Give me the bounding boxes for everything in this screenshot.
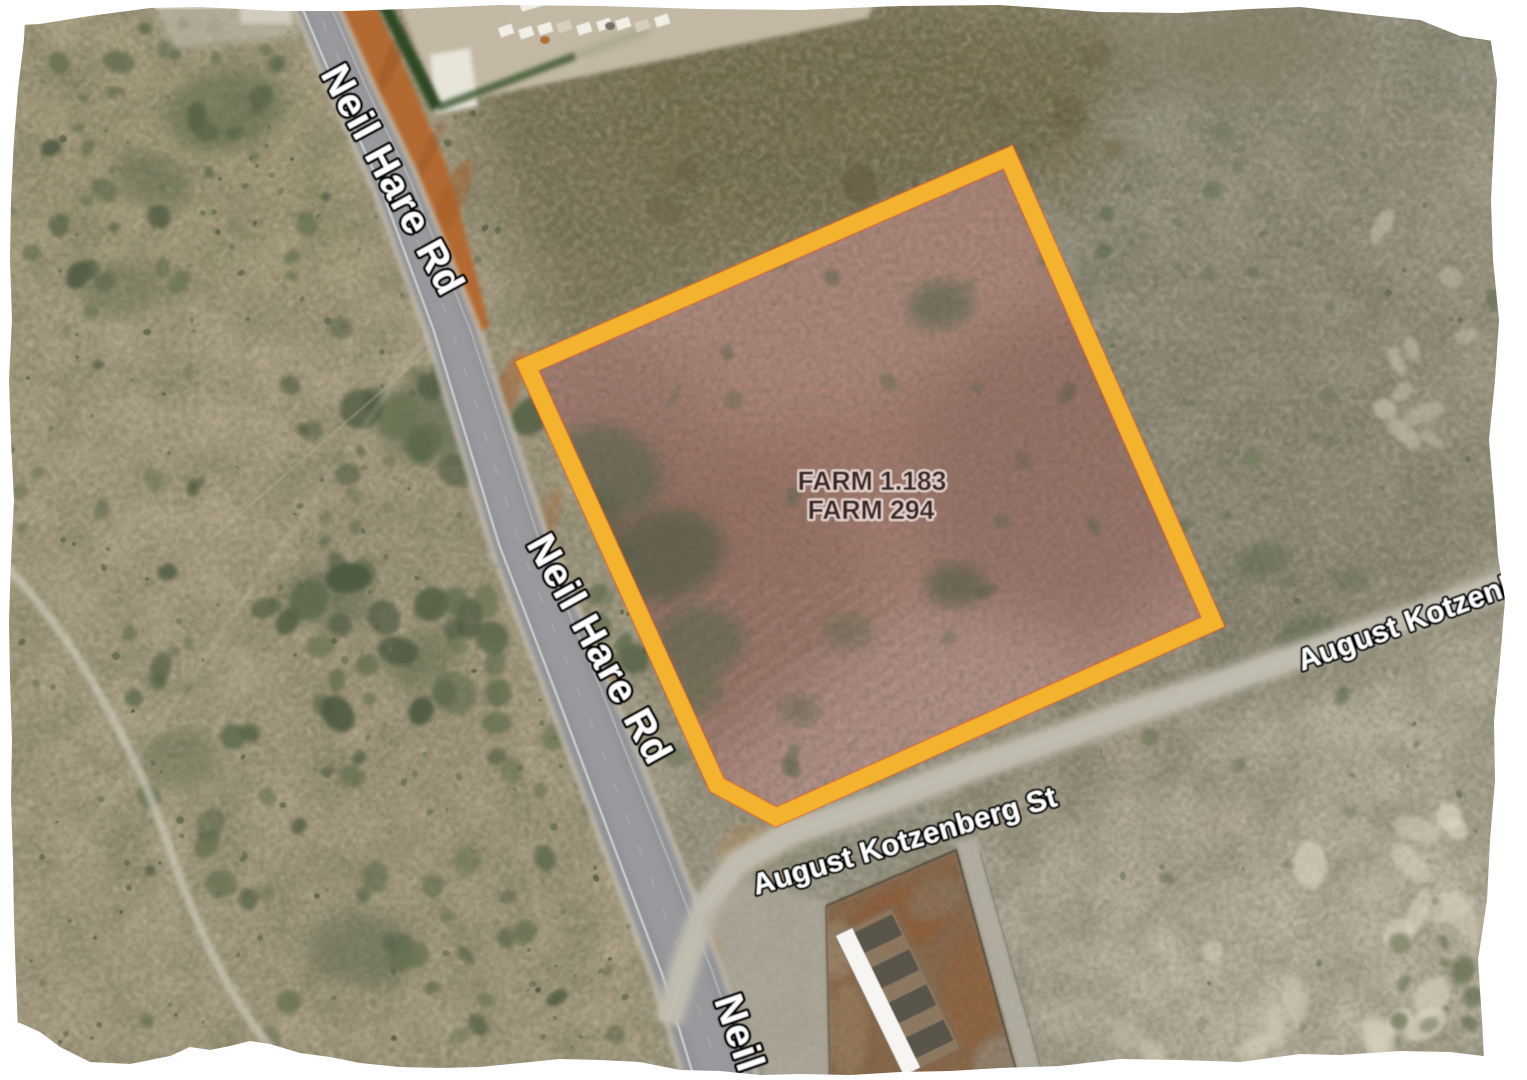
svg-text:FARM 1.183: FARM 1.183 xyxy=(798,466,947,496)
svg-text:FARM 294: FARM 294 xyxy=(808,495,935,525)
